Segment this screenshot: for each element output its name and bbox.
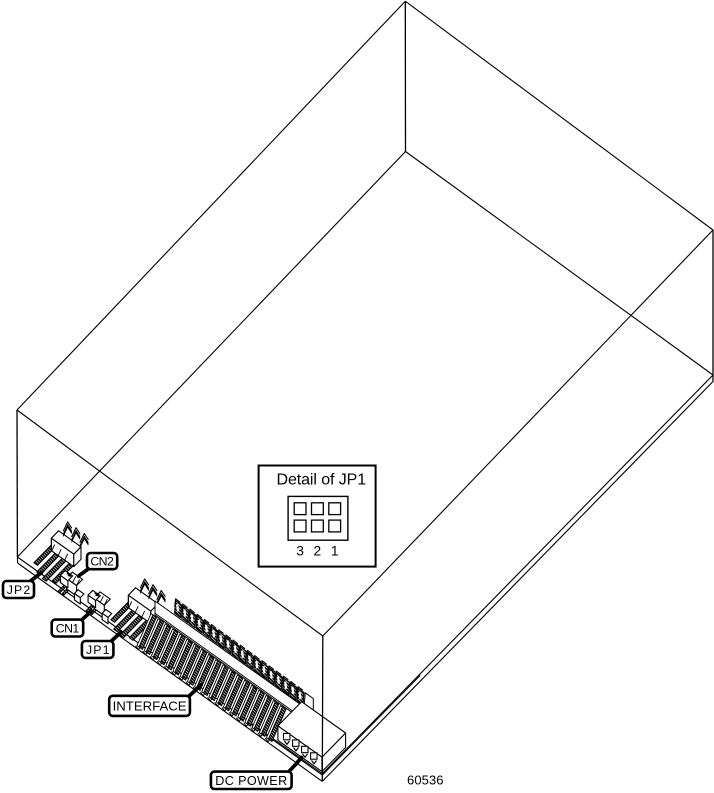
svg-text:JP1: JP1 — [86, 643, 110, 657]
svg-text:JP2: JP2 — [7, 583, 31, 597]
svg-text:1: 1 — [331, 544, 339, 559]
svg-text:CN1: CN1 — [56, 622, 80, 636]
svg-text:DC POWER: DC POWER — [215, 774, 287, 788]
svg-text:Detail of JP1: Detail of JP1 — [277, 472, 367, 489]
svg-text:CN2: CN2 — [90, 555, 114, 569]
svg-text:INTERFACE: INTERFACE — [113, 699, 187, 714]
svg-text:2: 2 — [314, 544, 322, 559]
svg-text:3: 3 — [296, 544, 304, 559]
svg-text:60536: 60536 — [407, 773, 444, 788]
